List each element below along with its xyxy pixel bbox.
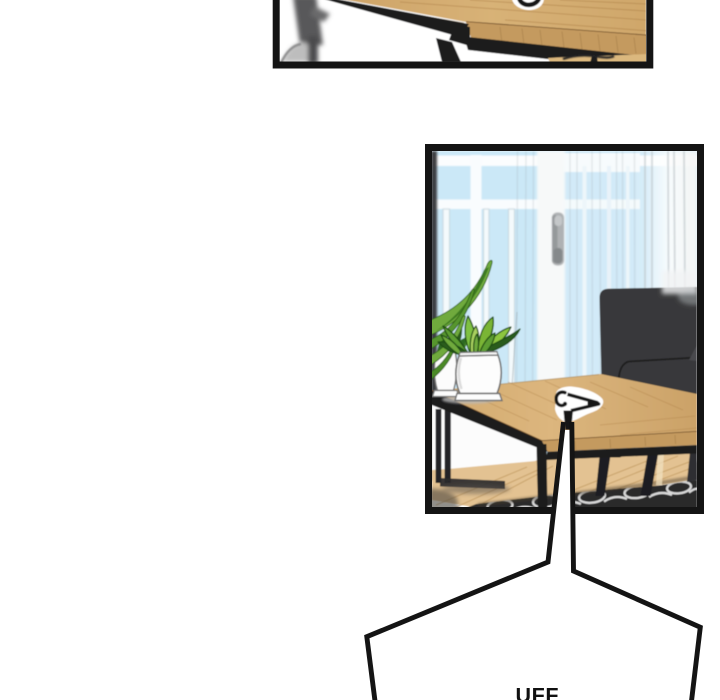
svg-text:UFF: UFF — [516, 684, 560, 700]
